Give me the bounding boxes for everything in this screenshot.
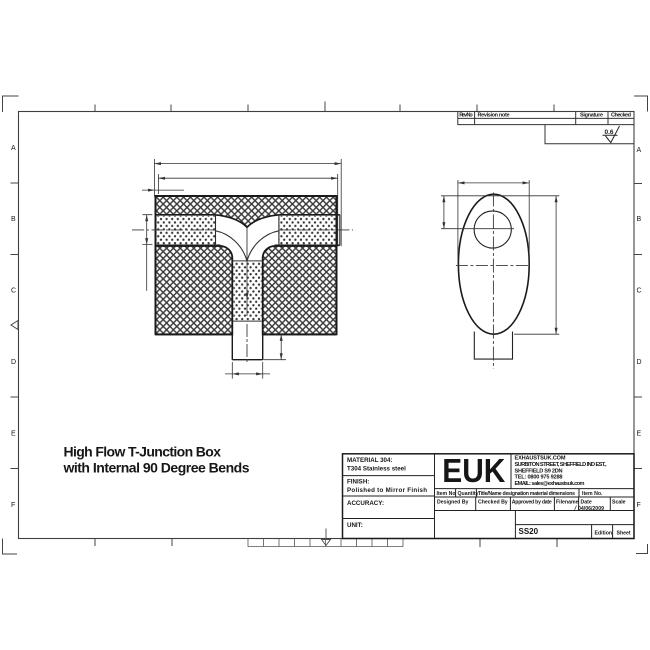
svg-text:Approved by date: Approved by date <box>512 500 552 506</box>
svg-text:F: F <box>637 502 641 509</box>
svg-text:Designed By: Designed By <box>437 500 469 506</box>
svg-text:Signature: Signature <box>580 113 603 119</box>
svg-text:0.6: 0.6 <box>605 129 614 136</box>
svg-text:T304 Stainless steel: T304 Stainless steel <box>347 465 406 472</box>
svg-text:C: C <box>637 288 642 295</box>
svg-text:MATERIAL 304:: MATERIAL 304: <box>347 457 393 464</box>
svg-text:Item No: Item No <box>437 491 456 497</box>
svg-text:B: B <box>11 216 16 223</box>
svg-text:Item No.: Item No. <box>582 491 603 497</box>
svg-text:Quantity: Quantity <box>458 491 479 497</box>
svg-text:Scale: Scale <box>612 500 626 506</box>
svg-text:EUK: EUK <box>442 452 505 489</box>
svg-text:B: B <box>637 216 642 223</box>
svg-text:with Internal 90 Degree Bends: with Internal 90 Degree Bends <box>63 460 250 476</box>
svg-text:04/06/2009: 04/06/2009 <box>578 506 604 512</box>
svg-text:A: A <box>11 145 16 152</box>
svg-text:Filename: Filename <box>556 500 579 506</box>
svg-text:Revision note: Revision note <box>478 113 510 119</box>
svg-text:E: E <box>637 431 642 438</box>
svg-text:C: C <box>11 288 16 295</box>
svg-text:D: D <box>637 359 642 366</box>
svg-text:TEL: 0800 975 9288: TEL: 0800 975 9288 <box>515 475 563 481</box>
svg-text:EXHAUSTSUK.COM: EXHAUSTSUK.COM <box>515 456 566 462</box>
svg-text:EMAIL: sales@exhaustsuk.com: EMAIL: sales@exhaustsuk.com <box>515 481 585 487</box>
svg-text:Date: Date <box>581 500 592 506</box>
svg-text:Polished to Mirror Finish: Polished to Mirror Finish <box>347 487 427 494</box>
svg-text:UNIT:: UNIT: <box>347 522 363 529</box>
svg-text:SHEFFIELD S9 2DN: SHEFFIELD S9 2DN <box>515 468 563 474</box>
svg-text:FINISH:: FINISH: <box>347 479 369 486</box>
svg-text:Edition: Edition <box>595 531 613 537</box>
svg-text:ACCURACY:: ACCURACY: <box>347 500 384 507</box>
svg-text:A: A <box>637 147 642 154</box>
svg-text:Checked By: Checked By <box>478 500 508 506</box>
svg-text:Sheet: Sheet <box>617 531 631 537</box>
svg-text:Rev No: Rev No <box>459 113 473 119</box>
svg-text:SURBITON STREET, SHEFFIELD IND: SURBITON STREET, SHEFFIELD IND EST., <box>515 462 607 468</box>
svg-text:F: F <box>11 502 15 509</box>
svg-text:Title/Name designation materia: Title/Name designation material dimensio… <box>478 491 575 497</box>
svg-text:Checked: Checked <box>611 113 631 119</box>
svg-text:E: E <box>11 431 16 438</box>
svg-text:D: D <box>11 359 16 366</box>
svg-text:High Flow T-Junction Box: High Flow T-Junction Box <box>64 444 222 460</box>
svg-text:SS20: SS20 <box>519 527 539 536</box>
